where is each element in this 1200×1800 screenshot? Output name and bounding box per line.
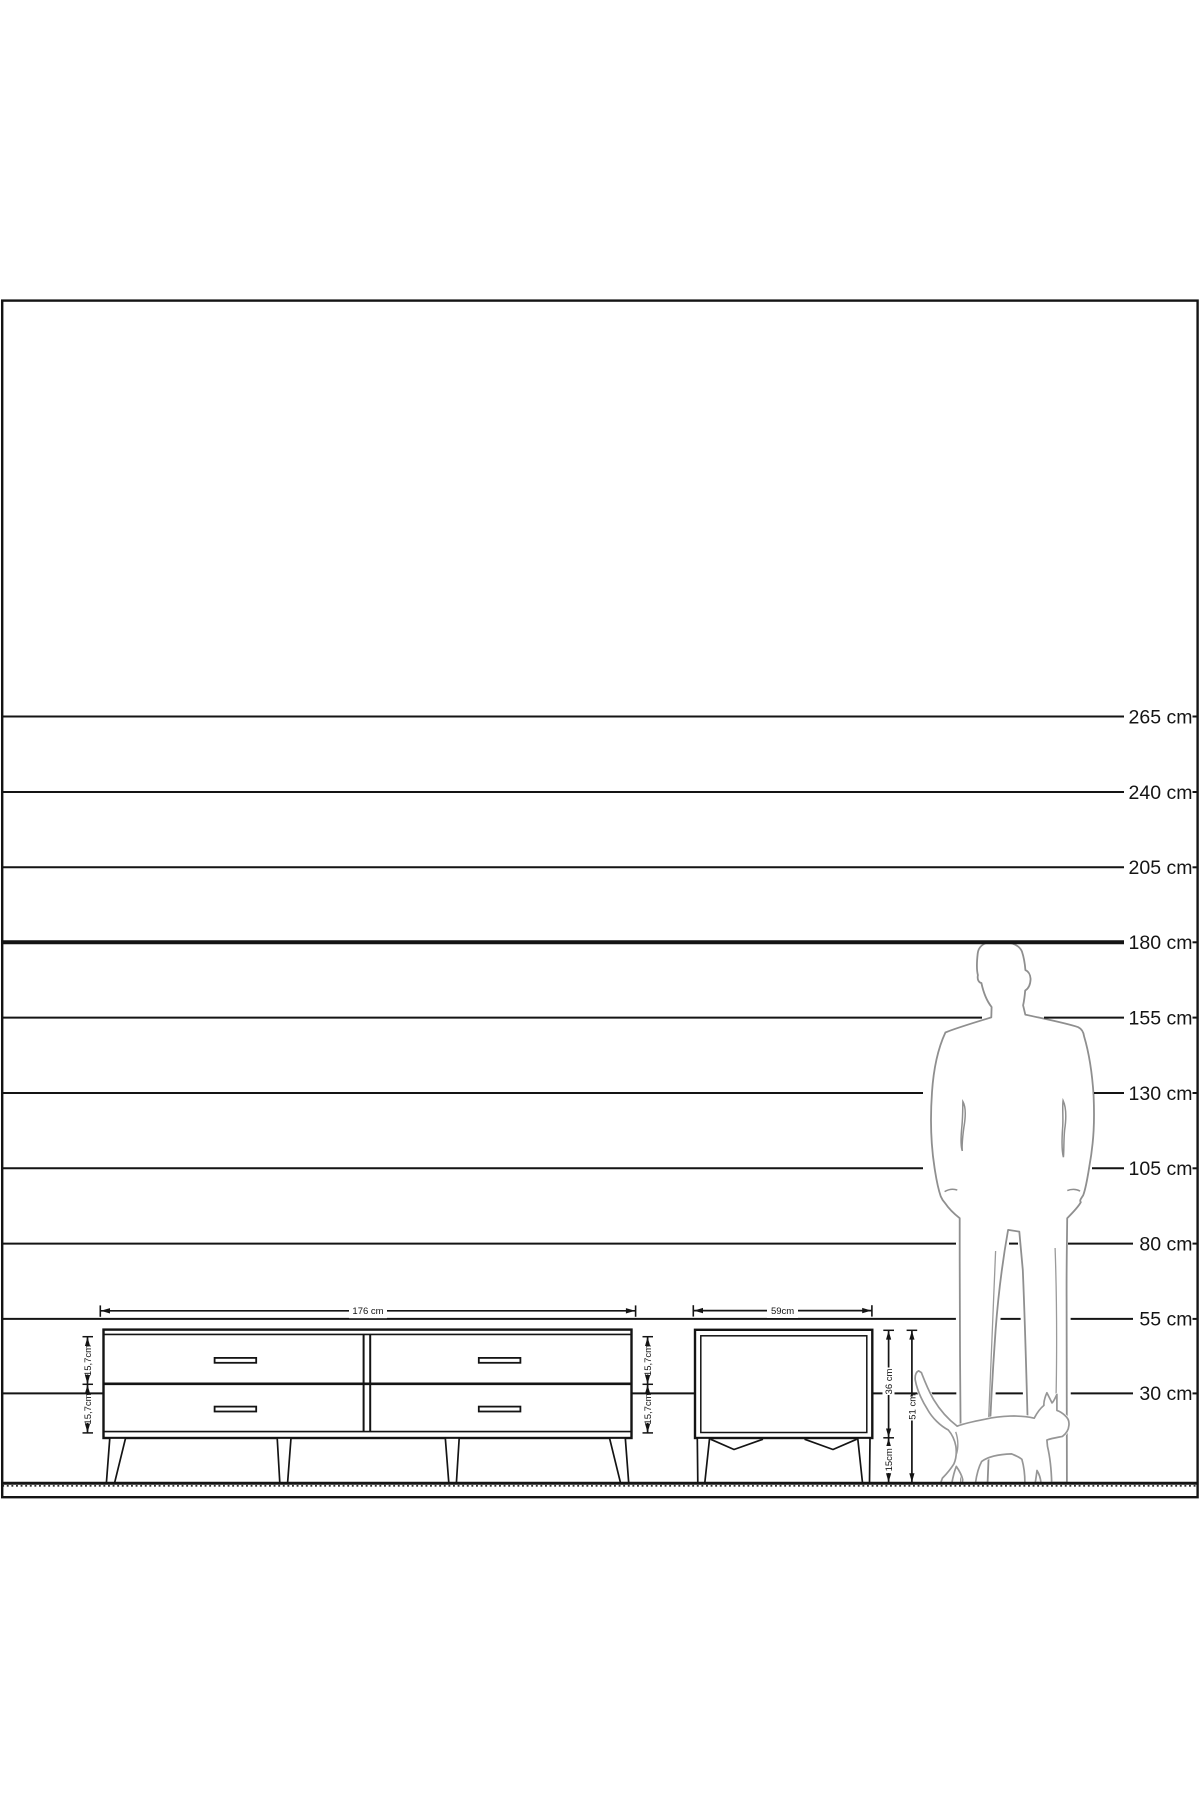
svg-text:15cm: 15cm <box>884 1448 895 1471</box>
svg-text:51 cm: 51 cm <box>907 1394 918 1420</box>
svg-text:265 cm: 265 cm <box>1129 706 1193 728</box>
svg-text:55 cm: 55 cm <box>1139 1309 1192 1331</box>
svg-text:180 cm: 180 cm <box>1129 932 1193 954</box>
svg-text:105 cm: 105 cm <box>1129 1158 1193 1180</box>
svg-text:36 cm: 36 cm <box>884 1368 895 1394</box>
svg-text:59cm: 59cm <box>771 1306 794 1317</box>
svg-text:15,7cm: 15,7cm <box>83 1345 94 1376</box>
svg-text:205 cm: 205 cm <box>1129 857 1193 879</box>
svg-text:155 cm: 155 cm <box>1129 1007 1193 1029</box>
svg-text:240 cm: 240 cm <box>1129 782 1193 804</box>
svg-text:80 cm: 80 cm <box>1139 1233 1192 1255</box>
svg-text:30 cm: 30 cm <box>1139 1383 1192 1405</box>
svg-text:15,7cm: 15,7cm <box>643 1393 654 1424</box>
svg-text:176 cm: 176 cm <box>352 1306 383 1317</box>
svg-text:15,7cm: 15,7cm <box>643 1345 654 1376</box>
svg-text:130 cm: 130 cm <box>1129 1083 1193 1105</box>
svg-text:15,7cm: 15,7cm <box>83 1393 94 1424</box>
